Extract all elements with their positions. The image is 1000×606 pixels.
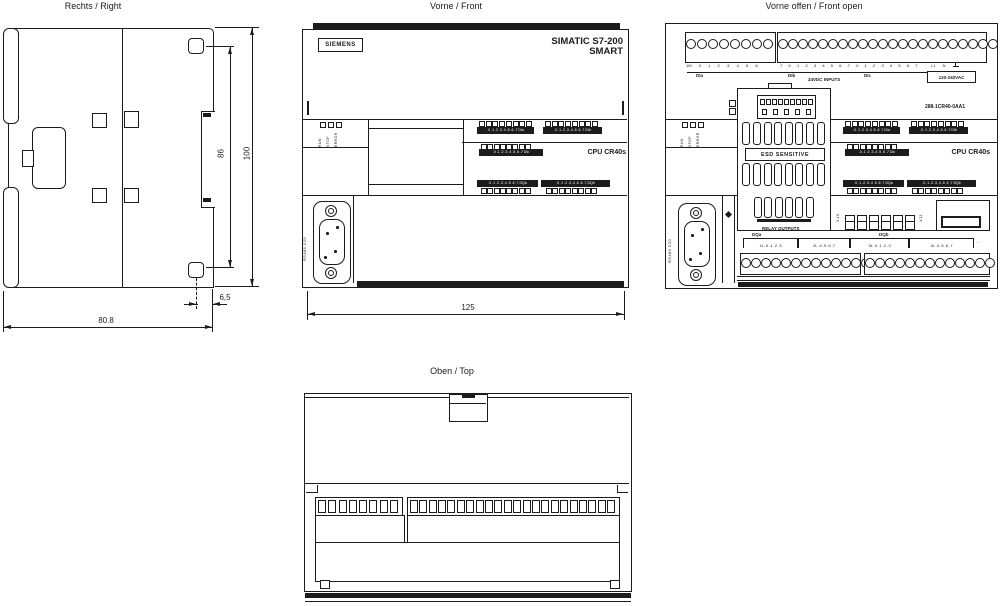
open-left-band-line	[665, 147, 737, 148]
ground-icon	[953, 63, 959, 68]
vent-shape	[742, 122, 750, 145]
open-band-line-right	[830, 119, 997, 120]
tooth-shape	[551, 500, 559, 513]
tooth-shape	[359, 500, 367, 513]
pin-shape	[784, 99, 789, 105]
vent-shape	[817, 122, 825, 145]
top-foot-left	[320, 580, 330, 589]
tcirc-shape	[898, 39, 908, 49]
pin-shape	[766, 99, 771, 105]
tcirc-shape	[868, 39, 878, 49]
din-clip-step	[449, 403, 486, 404]
vent-shape	[774, 163, 782, 186]
tooth-shape	[339, 500, 347, 513]
open-bottom-cap	[738, 282, 988, 287]
tcirc-shape	[928, 39, 938, 49]
tooth-shape	[504, 500, 512, 513]
open-latch-square-1	[729, 100, 736, 107]
input-terminals-right	[778, 37, 984, 51]
tooth-shape	[513, 500, 521, 513]
clamp-shape	[857, 215, 867, 230]
top-band-full	[315, 542, 620, 582]
top-view: Oben / Top	[0, 340, 1000, 606]
vent-s-shape	[754, 197, 762, 218]
tooth-shape	[570, 500, 578, 513]
led-shape	[872, 188, 878, 194]
pin-shape	[802, 99, 807, 105]
power-l1: L1	[931, 63, 935, 68]
bcirc-shape	[771, 258, 781, 268]
tcirc-shape	[719, 39, 729, 49]
tooth-shape	[369, 500, 377, 513]
led-shape	[944, 188, 950, 194]
top-notch-left-v	[317, 485, 318, 493]
bcirc-shape	[905, 258, 915, 268]
relay-group-3: 3L .0 .1 .2 .3	[850, 238, 909, 248]
output-jumpers	[845, 215, 915, 230]
top-foot-right	[610, 580, 620, 589]
open-db9-screw-bottom-inner	[693, 272, 699, 278]
tcirc-shape	[697, 39, 707, 49]
bcirc-shape	[925, 258, 935, 268]
input-term-numbers-left: 1M .0 .1 .2 .3 .4 .5 .6	[686, 63, 774, 68]
bcirc-shape	[841, 258, 851, 268]
output-terminals-left	[741, 257, 858, 269]
pin-shape	[762, 109, 767, 115]
tcirc-shape	[888, 39, 898, 49]
vent-shape	[817, 163, 825, 186]
bcirc-shape	[851, 258, 861, 268]
tooth-shape	[419, 500, 427, 513]
open-di-line	[830, 142, 997, 143]
open-db9-pin-3	[699, 252, 702, 255]
vent-shape	[764, 163, 772, 186]
group-label-dqa: DQa	[751, 232, 762, 237]
tcirc-shape	[958, 39, 968, 49]
vent-slots-row3	[753, 197, 815, 218]
open-db9-pin-4	[689, 258, 692, 261]
tcirc-shape	[918, 39, 928, 49]
tooth-shape	[523, 500, 531, 513]
bcirc-shape	[801, 258, 811, 268]
open-status-label-error: ERROR	[697, 129, 701, 147]
bcirc-shape	[965, 258, 975, 268]
relay-caption: RELAY OUTPUTS	[762, 226, 800, 231]
open-db9-screw-top-inner	[693, 210, 699, 216]
bcirc-shape	[875, 258, 885, 268]
clamp-shape	[905, 215, 915, 230]
vent-shape	[742, 163, 750, 186]
clamp-shape	[893, 215, 903, 230]
tcirc-shape	[838, 39, 848, 49]
led-shape	[951, 188, 957, 194]
tooth-shape	[494, 500, 502, 513]
open-bay-divider2	[734, 195, 735, 283]
tcirc-shape	[763, 39, 773, 49]
x11-label: X11	[919, 206, 923, 222]
bcirc-shape	[791, 258, 801, 268]
top-notch-left	[306, 492, 317, 493]
bcirc-shape	[975, 258, 985, 268]
vent-shape	[795, 163, 803, 186]
din-clip-bar	[462, 394, 475, 398]
open-status-label-run: RUN	[681, 129, 685, 147]
open-view-title: Vorne offen / Front open	[734, 1, 894, 11]
open-dq-a-leds	[847, 188, 897, 194]
bcirc-shape	[955, 258, 965, 268]
pin-shape	[772, 99, 777, 105]
esd-label-box: ESD SENSITIVE	[745, 148, 825, 161]
group-label-dqb: DQb	[878, 232, 890, 237]
memory-card-slot	[941, 216, 981, 228]
led-shape	[931, 188, 937, 194]
tooth-shape	[410, 500, 418, 513]
input-group-bracket	[687, 72, 927, 73]
tcirc-shape	[858, 39, 868, 49]
bcirc-shape	[985, 258, 995, 268]
tcirc-shape	[798, 39, 808, 49]
bcirc-shape	[895, 258, 905, 268]
pin-shape	[778, 99, 783, 105]
open-db9-pin-1	[701, 228, 704, 231]
open-dq-b-label-bar: .0 .1 .2 .3 .4 .5 .6 .7 DQb	[907, 180, 976, 187]
top-mid-line	[305, 483, 629, 484]
pin-shape	[796, 99, 801, 105]
tooth-shape	[438, 500, 446, 513]
open-db9-dsub-shell	[684, 221, 710, 267]
open-di-a-label-bar: .0 .1 .2 .3 .4 .5 .6 .7 DIa	[843, 127, 900, 134]
tooth-shape	[447, 500, 455, 513]
bcirc-shape	[915, 258, 925, 268]
pin-shape	[790, 99, 795, 105]
bcirc-shape	[831, 258, 841, 268]
vent-base-bar	[757, 219, 811, 222]
led-shape	[912, 188, 918, 194]
tcirc-shape	[778, 39, 788, 49]
top-teeth-left	[317, 500, 399, 513]
open-bay-divider	[722, 195, 723, 283]
tooth-shape	[560, 500, 568, 513]
pin-shape	[760, 99, 765, 105]
bcirc-shape	[761, 258, 771, 268]
tooth-shape	[607, 500, 615, 513]
bcirc-shape	[935, 258, 945, 268]
led-shape	[878, 188, 884, 194]
clamp-shape	[869, 215, 879, 230]
bcirc-shape	[885, 258, 895, 268]
tooth-shape	[457, 500, 465, 513]
led-shape	[925, 188, 931, 194]
led-shape	[918, 188, 924, 194]
clamp-shape	[881, 215, 891, 230]
top-rail-line	[305, 601, 631, 602]
tooth-shape	[485, 500, 493, 513]
bcirc-shape	[865, 258, 875, 268]
tcirc-shape	[686, 39, 696, 49]
vent-s-shape	[764, 197, 772, 218]
input-terminals-left	[686, 37, 773, 51]
vent-slots-row2	[741, 162, 826, 186]
tcirc-shape	[878, 39, 888, 49]
pin-shape	[795, 109, 800, 115]
bcirc-shape	[945, 258, 955, 268]
tcirc-shape	[818, 39, 828, 49]
pin-shape	[806, 109, 811, 115]
power-caption-box: 120-240VAC	[927, 71, 976, 83]
vent-s-shape	[785, 197, 793, 218]
bcirc-shape	[751, 258, 761, 268]
relay-extra-dots: · ·	[976, 240, 980, 245]
tooth-shape	[328, 500, 336, 513]
relay-group-2: 2L .4 .5 .6 .7	[798, 238, 850, 248]
group-label-dia: DIa	[696, 73, 703, 78]
open-cpu-model-label: CPU CR40s	[924, 149, 990, 156]
relay-group-4: 4L .4 .5 .6 .7	[909, 238, 974, 248]
open-dq-a-label-bar: .0 .1 .2 .3 .4 .5 .6 .7 DQa	[843, 180, 904, 187]
led-shape	[957, 188, 963, 194]
drawing-sheet: Rechts / Right 86 100	[0, 0, 1000, 606]
power-term-labels: L1 N	[931, 63, 976, 68]
tooth-shape	[390, 500, 398, 513]
tooth-shape	[380, 500, 388, 513]
expansion-connector	[757, 95, 816, 119]
x10-label: X10	[836, 206, 840, 222]
vent-shape	[753, 163, 761, 186]
tcirc-shape	[741, 39, 751, 49]
strip-base-line-2	[737, 280, 990, 281]
vent-slots-row1	[741, 121, 826, 145]
power-caption: 120-240VAC	[939, 75, 965, 80]
pin-shape	[773, 109, 778, 115]
vent-shape	[774, 122, 782, 145]
tooth-shape	[541, 500, 549, 513]
tcirc-shape	[908, 39, 918, 49]
clamp-shape	[845, 215, 855, 230]
tcirc-shape	[948, 39, 958, 49]
open-db9-pin-2	[691, 234, 694, 237]
pin-shape	[808, 99, 813, 105]
led-shape	[847, 188, 853, 194]
vent-shape	[785, 122, 793, 145]
tcirc-shape	[808, 39, 818, 49]
open-latch-square-2	[729, 108, 736, 115]
tooth-shape	[532, 500, 540, 513]
top-band-left	[315, 515, 405, 544]
open-rs485-port-label: RS485 X20	[668, 221, 672, 263]
tcirc-shape	[978, 39, 988, 49]
vent-s-shape	[775, 197, 783, 218]
tooth-shape	[579, 500, 587, 513]
vent-shape	[785, 163, 793, 186]
led-shape	[853, 188, 859, 194]
bcirc-shape	[781, 258, 791, 268]
tooth-shape	[466, 500, 474, 513]
tooth-shape	[349, 500, 357, 513]
order-number: 288-1CR40-0AA1	[880, 104, 965, 110]
top-rail-bar	[305, 593, 631, 598]
input-term-numbers-right: .7 .0 .1 .2 .3 .4 .5 .6 .7 .0 .1 .2 .3 .…	[779, 63, 929, 68]
power-n: N	[943, 63, 946, 68]
tooth-shape	[476, 500, 484, 513]
led-shape	[891, 188, 897, 194]
vent-shape	[806, 122, 814, 145]
top-notch-right-v	[617, 485, 618, 493]
tcirc-shape	[752, 39, 762, 49]
tooth-shape	[429, 500, 437, 513]
tcirc-shape	[938, 39, 948, 49]
bcirc-shape	[811, 258, 821, 268]
bcirc-shape	[741, 258, 751, 268]
vent-s-shape	[795, 197, 803, 218]
open-lower-line-right	[830, 195, 997, 196]
relay-group-1: 1L .0 .1 .2 .3	[743, 238, 798, 248]
tooth-shape	[588, 500, 596, 513]
led-shape	[938, 188, 944, 194]
output-terminals-right	[865, 257, 987, 269]
group-label-dib: DIb	[788, 73, 795, 78]
top-view-title: Oben / Top	[397, 366, 507, 376]
open-dq-b-leds	[912, 188, 963, 194]
top-band-right	[407, 515, 620, 544]
open-view: Vorne offen / Front open 1M .0 .1 .2 .3 …	[0, 0, 1000, 340]
tooth-shape	[598, 500, 606, 513]
vent-shape	[795, 122, 803, 145]
strip-base-line-1	[737, 276, 990, 277]
esd-label: ESD SENSITIVE	[761, 152, 809, 158]
tooth-shape	[318, 500, 326, 513]
open-lower-line-left	[665, 195, 737, 196]
tcirc-shape	[968, 39, 978, 49]
group-label-dic: DIc	[864, 73, 871, 78]
top-notch-right	[617, 492, 628, 493]
tcirc-shape	[788, 39, 798, 49]
vent-shape	[764, 122, 772, 145]
led-shape	[860, 188, 866, 194]
tcirc-shape	[848, 39, 858, 49]
open-di-c-label-bar: .0 .1 .2 .3 .4 .5 .6 .7 DIc	[845, 149, 909, 156]
tcirc-shape	[730, 39, 740, 49]
top-teeth-right	[409, 500, 616, 513]
led-shape	[885, 188, 891, 194]
din-clip	[449, 394, 488, 422]
tcirc-shape	[828, 39, 838, 49]
open-status-label-stop: STOP	[689, 129, 693, 147]
led-shape	[866, 188, 872, 194]
bcirc-shape	[821, 258, 831, 268]
jumper-base-line	[830, 230, 936, 231]
vent-shape	[806, 163, 814, 186]
open-band-line-left	[665, 119, 737, 120]
open-di-b-label-bar: .0 .1 .2 .3 .4 .5 .6 .7 DIb	[909, 127, 968, 134]
inputs-caption: 24VDC INPUTS	[808, 77, 840, 82]
tcirc-shape	[708, 39, 718, 49]
vent-s-shape	[806, 197, 814, 218]
vent-shape	[753, 122, 761, 145]
pin-shape	[784, 109, 789, 115]
tcirc-shape	[988, 39, 998, 49]
